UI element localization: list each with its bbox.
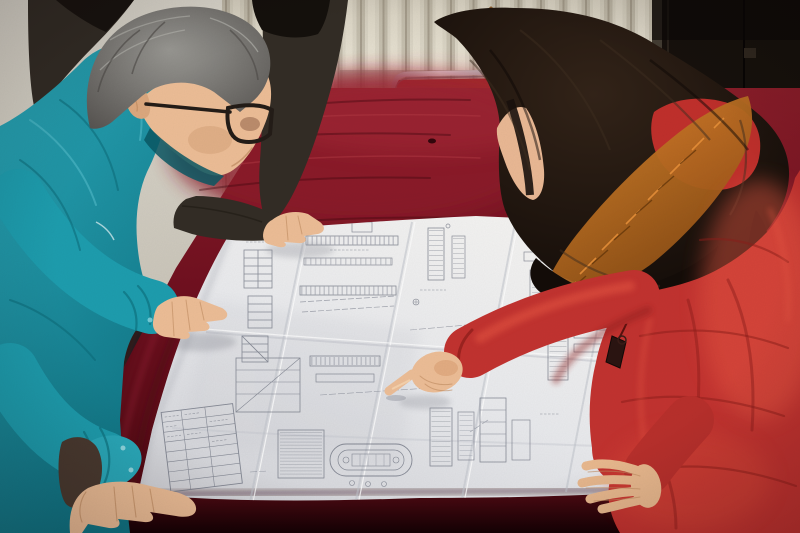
cuff-button [148,318,153,323]
cuff-button [121,446,126,451]
fingertip-shadow [386,395,406,401]
photo-blueprint-review [0,0,800,533]
woman-left-arm [648,420,690,470]
door-hardware [744,48,756,58]
photo-canvas [0,0,800,533]
velvet-debris [428,139,436,144]
cuff-button [129,468,134,473]
